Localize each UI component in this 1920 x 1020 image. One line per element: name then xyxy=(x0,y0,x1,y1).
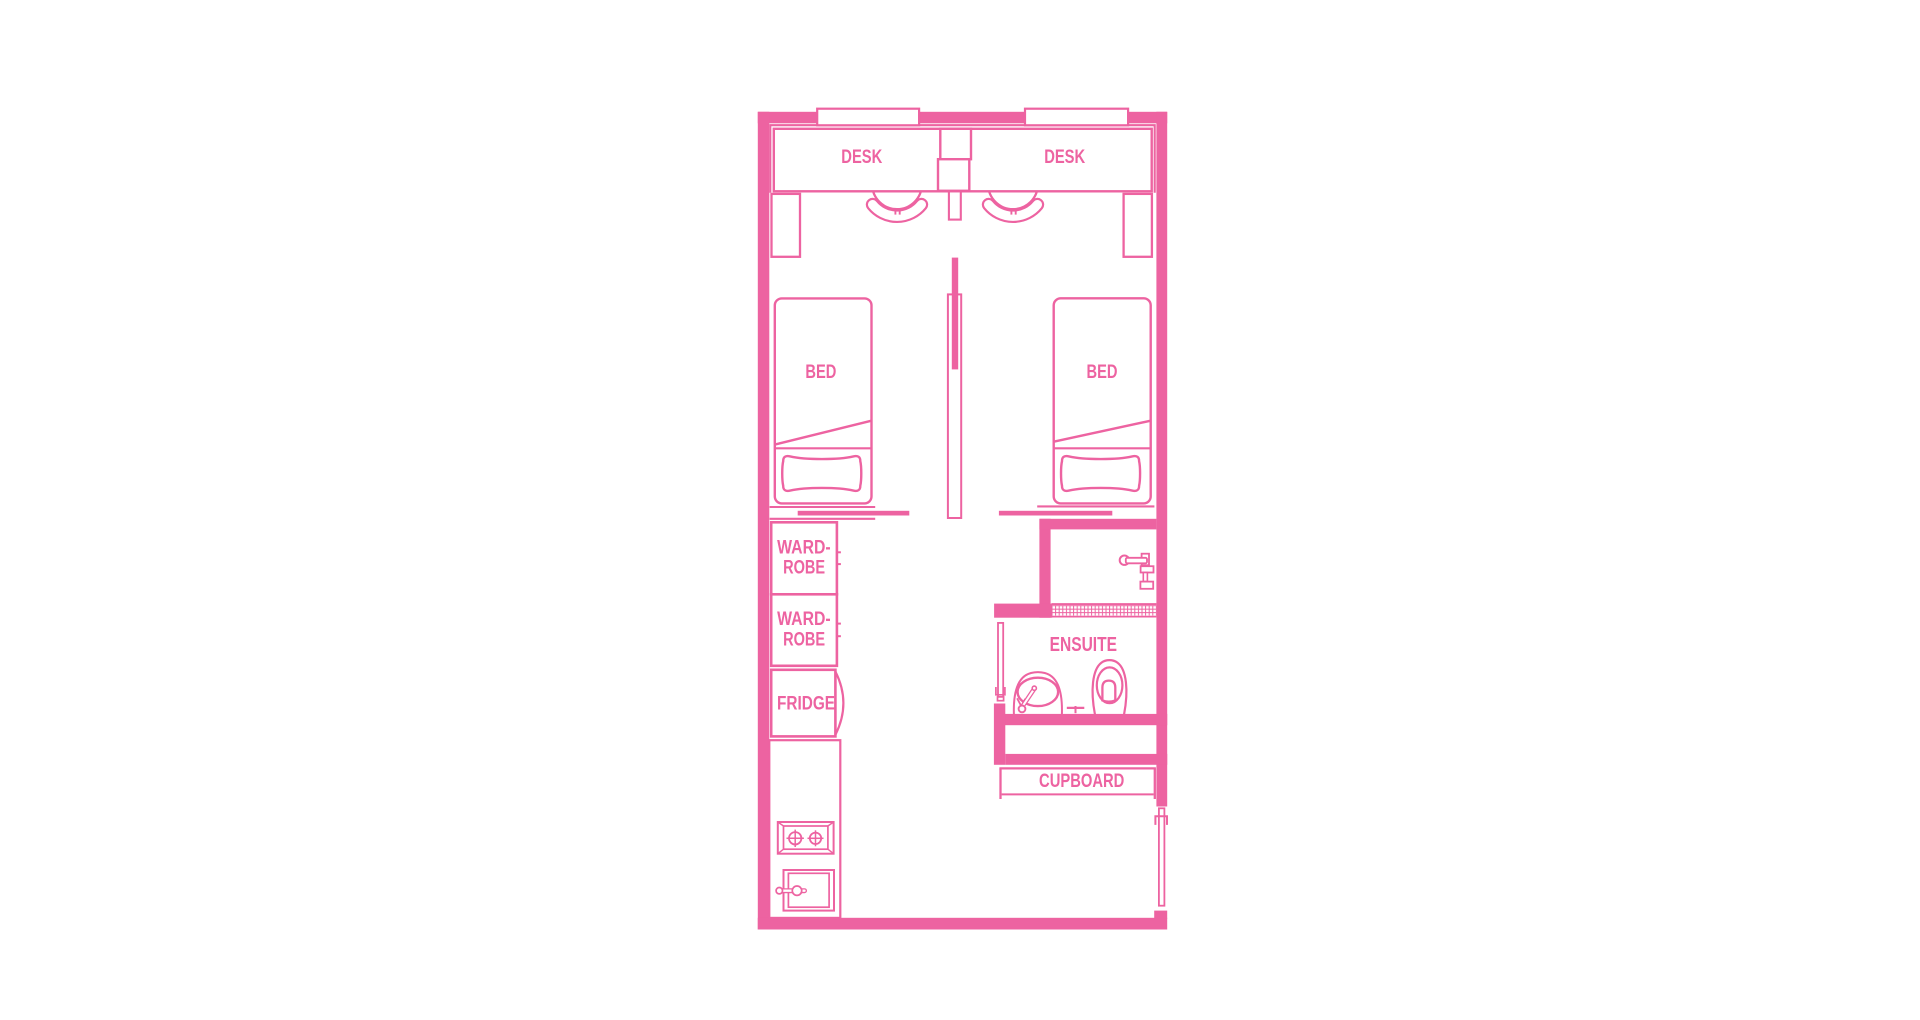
svg-text:CUPBOARD: CUPBOARD xyxy=(1039,770,1124,792)
svg-text:WARD-: WARD- xyxy=(777,538,831,559)
svg-text:DESK: DESK xyxy=(1044,147,1085,168)
svg-text:DESK: DESK xyxy=(841,147,882,168)
svg-text:ENSUITE: ENSUITE xyxy=(1050,634,1117,656)
svg-text:ROBE: ROBE xyxy=(783,629,825,650)
svg-text:WARD-: WARD- xyxy=(777,609,831,630)
svg-text:BED: BED xyxy=(805,362,836,383)
svg-text:FRIDGE: FRIDGE xyxy=(777,693,835,715)
svg-text:ROBE: ROBE xyxy=(783,557,825,578)
svg-text:BED: BED xyxy=(1087,362,1118,383)
